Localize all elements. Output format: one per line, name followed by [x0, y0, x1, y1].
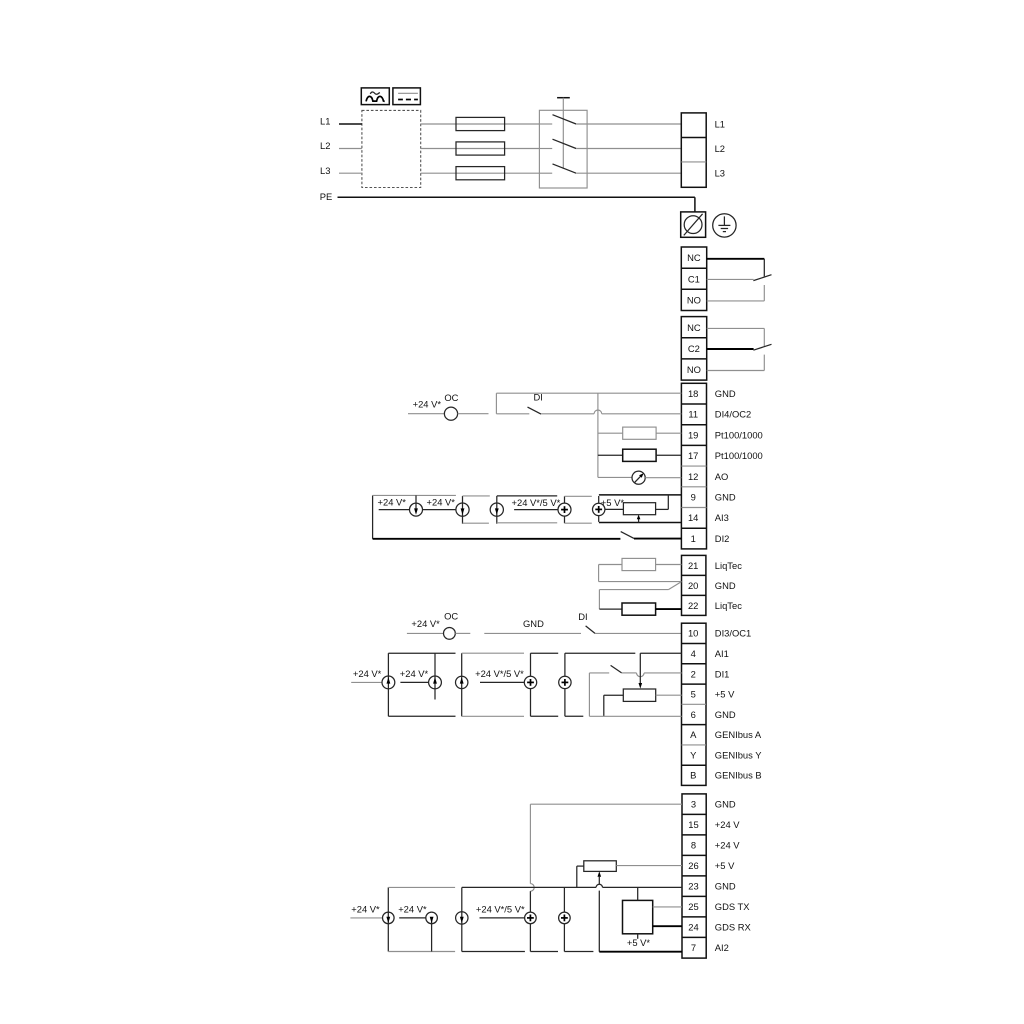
svg-text:19: 19 [688, 429, 698, 440]
svg-text:GND: GND [715, 388, 736, 399]
svg-text:GND: GND [715, 799, 736, 810]
svg-text:GENIbus B: GENIbus B [715, 770, 762, 781]
svg-text:+24 V*: +24 V* [398, 903, 427, 914]
svg-text:NC: NC [687, 322, 701, 333]
svg-text:Pt100/1000: Pt100/1000 [715, 429, 763, 440]
svg-text:6: 6 [691, 709, 696, 720]
svg-text:OC: OC [444, 611, 458, 622]
svg-text:Pt100/1000: Pt100/1000 [715, 450, 763, 461]
svg-text:+24 V*/5 V*: +24 V*/5 V* [476, 903, 525, 914]
svg-text:+24 V*: +24 V* [411, 618, 440, 629]
svg-text:LiqTec: LiqTec [715, 600, 742, 611]
svg-text:L3: L3 [320, 165, 330, 176]
svg-text:C1: C1 [688, 273, 700, 284]
svg-text:+5 V: +5 V [715, 689, 735, 700]
svg-text:7: 7 [691, 942, 696, 953]
svg-text:20: 20 [688, 580, 698, 591]
svg-text:24: 24 [688, 922, 698, 933]
svg-text:GND: GND [715, 881, 736, 892]
svg-text:AI3: AI3 [715, 512, 729, 523]
svg-text:18: 18 [688, 388, 698, 399]
svg-text:9: 9 [691, 492, 696, 503]
svg-text:+24 V: +24 V [715, 840, 741, 851]
svg-text:NO: NO [687, 294, 701, 305]
svg-text:L2: L2 [715, 143, 725, 154]
svg-text:AI2: AI2 [715, 942, 729, 953]
svg-text:NC: NC [687, 252, 701, 263]
svg-text:C2: C2 [688, 343, 700, 354]
svg-text:+24 V*: +24 V* [351, 903, 380, 914]
svg-text:DI1: DI1 [715, 668, 730, 679]
svg-text:+24 V: +24 V [715, 819, 741, 830]
svg-text:11: 11 [688, 409, 698, 420]
svg-text:OC: OC [444, 392, 458, 403]
svg-text:GDS TX: GDS TX [715, 901, 750, 912]
svg-text:5: 5 [691, 689, 696, 700]
svg-text:GDS RX: GDS RX [715, 922, 752, 933]
svg-text:+24 V*: +24 V* [378, 497, 407, 508]
svg-text:+24 V*: +24 V* [427, 497, 456, 508]
svg-text:GENIbus Y: GENIbus Y [715, 749, 762, 760]
svg-text:L1: L1 [320, 116, 330, 127]
svg-text:L1: L1 [715, 118, 725, 129]
svg-text:+24 V*: +24 V* [353, 668, 382, 679]
svg-text:22: 22 [688, 600, 698, 611]
svg-text:+5 V*: +5 V* [627, 937, 651, 948]
svg-text:1: 1 [691, 533, 696, 544]
svg-text:GND: GND [523, 618, 544, 629]
svg-text:8: 8 [691, 840, 696, 851]
svg-text:+24 V*: +24 V* [400, 668, 429, 679]
svg-text:2: 2 [691, 668, 696, 679]
svg-text:+5 V*: +5 V* [601, 497, 625, 508]
svg-text:DI2: DI2 [715, 533, 730, 544]
svg-text:14: 14 [688, 512, 698, 523]
svg-text:GND: GND [715, 709, 736, 720]
svg-text:DI: DI [578, 611, 587, 622]
svg-text:PE: PE [320, 191, 333, 202]
svg-text:10: 10 [688, 628, 698, 639]
svg-text:GND: GND [715, 492, 736, 503]
svg-text:+24 V*/5 V*: +24 V*/5 V* [475, 668, 524, 679]
svg-text:AI1: AI1 [715, 648, 729, 659]
svg-text:21: 21 [688, 560, 698, 571]
svg-text:DI: DI [534, 391, 543, 402]
svg-text:+24 V*/5 V*: +24 V*/5 V* [512, 497, 561, 508]
svg-text:26: 26 [688, 860, 698, 871]
svg-text:NO: NO [687, 364, 701, 375]
svg-text:AO: AO [715, 471, 729, 482]
svg-text:23: 23 [688, 881, 698, 892]
svg-text:17: 17 [688, 450, 698, 461]
svg-text:DI3/OC1: DI3/OC1 [715, 628, 751, 639]
svg-text:GND: GND [715, 580, 736, 591]
svg-text:B: B [690, 770, 696, 781]
svg-text:A: A [690, 729, 697, 740]
svg-text:L3: L3 [715, 168, 725, 179]
svg-text:4: 4 [691, 648, 696, 659]
svg-text:+5 V: +5 V [715, 860, 735, 871]
svg-text:Y: Y [690, 749, 697, 760]
svg-text:LiqTec: LiqTec [715, 560, 742, 571]
svg-text:L2: L2 [320, 140, 330, 151]
svg-text:3: 3 [691, 799, 696, 810]
svg-text:25: 25 [688, 901, 698, 912]
svg-text:12: 12 [688, 471, 698, 482]
svg-text:+24 V*: +24 V* [413, 399, 442, 410]
svg-text:GENIbus A: GENIbus A [715, 729, 762, 740]
svg-text:15: 15 [688, 819, 698, 830]
svg-text:DI4/OC2: DI4/OC2 [715, 409, 751, 420]
